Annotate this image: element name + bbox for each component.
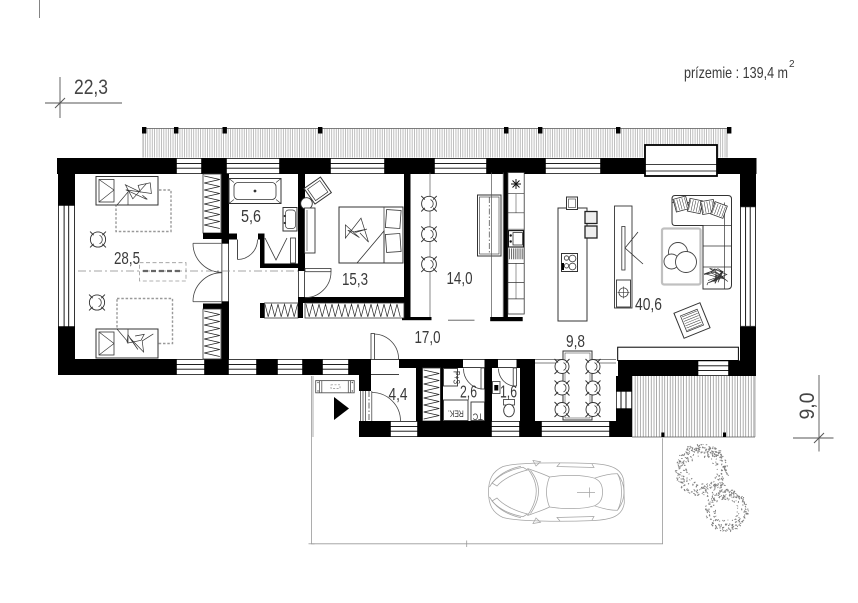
svg-text:1,6: 1,6	[500, 382, 517, 402]
svg-text:TC: TC	[472, 411, 482, 421]
svg-text:40,6: 40,6	[635, 294, 662, 314]
svg-text:5,6: 5,6	[241, 206, 261, 226]
svg-text:2,6: 2,6	[460, 382, 477, 402]
svg-text:14,0: 14,0	[447, 268, 473, 288]
svg-text:22,3: 22,3	[74, 76, 108, 99]
svg-text:15,3: 15,3	[342, 269, 368, 289]
svg-text:4,4: 4,4	[389, 384, 408, 404]
svg-text:28,5: 28,5	[114, 248, 140, 268]
svg-text:9,0: 9,0	[796, 393, 819, 420]
svg-text:9,8: 9,8	[566, 331, 585, 351]
svg-text:2: 2	[789, 59, 795, 70]
svg-text:REK.: REK.	[448, 409, 464, 419]
svg-text:17,0: 17,0	[415, 327, 441, 347]
svg-text:prízemie : 139,4 m: prízemie : 139,4 m	[684, 65, 788, 82]
